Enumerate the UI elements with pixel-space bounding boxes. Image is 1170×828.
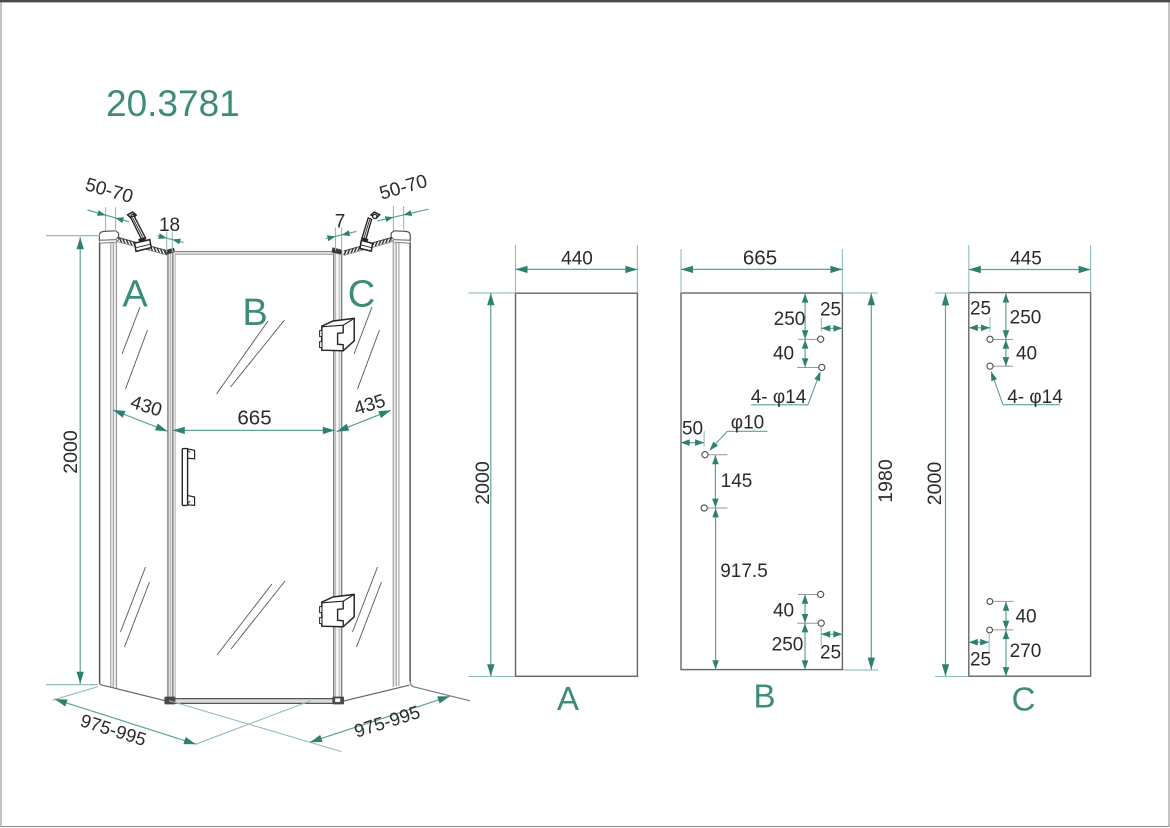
svg-text:25: 25	[970, 650, 991, 671]
svg-text:18: 18	[159, 215, 180, 236]
svg-text:A: A	[122, 274, 148, 316]
svg-text:B: B	[753, 678, 775, 715]
svg-text:4- φ14: 4- φ14	[751, 387, 807, 408]
svg-text:40: 40	[1015, 607, 1036, 628]
svg-text:φ10: φ10	[731, 413, 764, 434]
svg-text:20.3781: 20.3781	[106, 83, 240, 124]
svg-text:40: 40	[773, 344, 794, 365]
svg-text:2000: 2000	[60, 430, 82, 474]
svg-text:2000: 2000	[472, 461, 494, 505]
svg-text:50: 50	[682, 419, 703, 440]
svg-text:440: 440	[561, 249, 593, 270]
svg-text:40: 40	[773, 601, 794, 622]
svg-text:665: 665	[237, 407, 271, 430]
svg-text:145: 145	[721, 471, 753, 492]
svg-text:917.5: 917.5	[720, 561, 768, 582]
svg-text:C: C	[1012, 681, 1036, 718]
svg-text:A: A	[557, 680, 579, 717]
svg-text:2000: 2000	[924, 462, 946, 506]
svg-text:250: 250	[774, 309, 806, 330]
svg-text:25: 25	[820, 300, 841, 321]
svg-text:250: 250	[772, 635, 804, 656]
svg-text:40: 40	[1016, 344, 1037, 365]
svg-text:25: 25	[820, 643, 841, 664]
svg-text:4- φ14: 4- φ14	[1007, 387, 1063, 408]
svg-text:250: 250	[1010, 308, 1042, 329]
svg-text:1980: 1980	[875, 459, 897, 503]
svg-text:C: C	[348, 274, 375, 316]
svg-text:445: 445	[1010, 249, 1042, 270]
svg-text:7: 7	[335, 212, 346, 233]
svg-text:B: B	[242, 292, 267, 334]
svg-text:270: 270	[1010, 641, 1042, 662]
svg-text:665: 665	[743, 247, 777, 270]
svg-text:25: 25	[970, 299, 991, 320]
